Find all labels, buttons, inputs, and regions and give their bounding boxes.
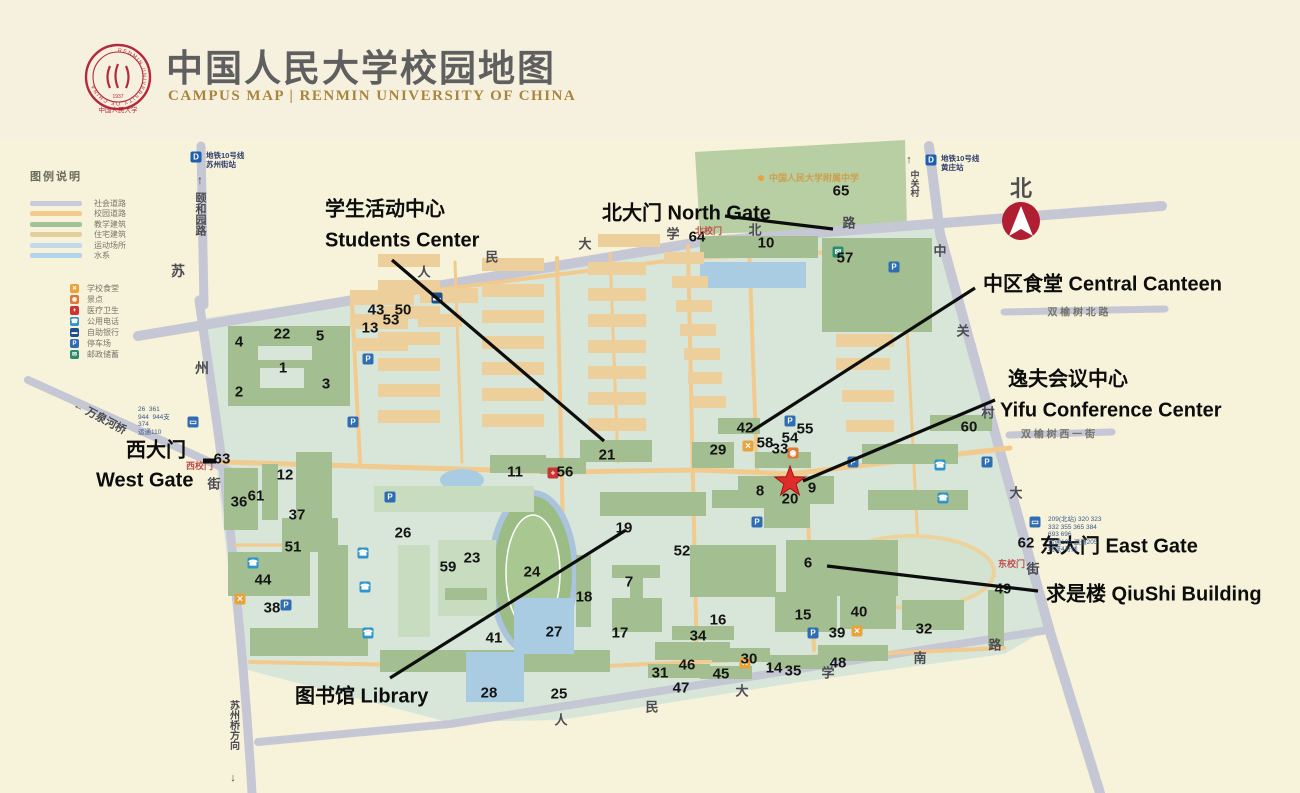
post-icon: ✉ xyxy=(70,350,79,359)
legend-color-bar xyxy=(30,211,82,216)
legend-road-item: 住宅建筑 xyxy=(30,230,180,241)
annotation-students-center-en: Students Center xyxy=(325,230,479,253)
tel-icon: ☎ xyxy=(70,317,79,326)
legend-icon-label: 邮政储蓄 xyxy=(87,349,119,360)
legend-road-item: 教学建筑 xyxy=(30,219,180,230)
legend-icon-label: 医疗卫生 xyxy=(87,305,119,316)
legend-icon-label: 景点 xyxy=(87,294,103,305)
compass: 北 xyxy=(1002,176,1040,240)
annotation-west-gate-en: West Gate xyxy=(96,470,193,493)
legend-icon-label: 公用电话 xyxy=(87,316,119,327)
legend-road-item: 运动场所 xyxy=(30,240,180,251)
scenic-icon: ◉ xyxy=(70,295,79,304)
annotation-central-canteen: 中区食堂 Central Canteen xyxy=(983,268,1222,297)
annotation-north-gate: 北大门 North Gate xyxy=(602,197,771,226)
central-canteen-line xyxy=(752,288,975,431)
location-star xyxy=(775,466,805,495)
annotation-students-center-cn: 学生活动中心 xyxy=(325,193,445,222)
legend-icon-item: ✕学校食堂 xyxy=(70,283,180,294)
legend-icon-item: ✉邮政储蓄 xyxy=(70,349,180,360)
legend-color-bar xyxy=(30,222,82,227)
legend-color-bar xyxy=(30,232,82,237)
legend-road-item: 校园道路 xyxy=(30,209,180,220)
map-overlay: 北 xyxy=(0,0,1300,793)
legend-road-label: 社会道路 xyxy=(94,198,126,209)
annotation-yifu-en: Yifu Conference Center xyxy=(1000,400,1222,423)
east-gate-routes: 209(北站) 320 323 332 355 365 384 693 696 … xyxy=(1048,516,1101,554)
annotation-lines xyxy=(203,216,1038,678)
med-icon: + xyxy=(70,306,79,315)
legend-icon-items: ✕学校食堂◉景点+医疗卫生☎公用电话▬自助银行P停车场✉邮政储蓄 xyxy=(70,283,180,360)
legend-icon-item: ☎公用电话 xyxy=(70,316,180,327)
legend-icon-item: ◉景点 xyxy=(70,294,180,305)
legend-icon-label: 自助银行 xyxy=(87,327,119,338)
legend-road-label: 住宅建筑 xyxy=(94,229,126,240)
annotation-west-gate-cn: 西大门 xyxy=(126,434,186,463)
annotation-yifu-cn: 逸夫会议中心 xyxy=(1008,363,1128,392)
legend-color-bar xyxy=(30,201,82,206)
qiushi-line xyxy=(827,566,1038,591)
legend-title: 图例说明 xyxy=(30,168,180,184)
legend-color-bar xyxy=(30,243,82,248)
food-icon: ✕ xyxy=(70,284,79,293)
legend-road-label: 运动场所 xyxy=(94,240,126,251)
P-icon: P xyxy=(70,339,79,348)
legend-icon-item: +医疗卫生 xyxy=(70,305,180,316)
annotation-library: 图书馆 Library xyxy=(295,680,428,709)
legend-icon-label: 学校食堂 xyxy=(87,283,119,294)
legend-color-bar xyxy=(30,253,82,258)
legend-road-label: 水系 xyxy=(94,250,110,261)
library-line xyxy=(390,530,626,678)
yifu-line xyxy=(803,400,995,481)
compass-north-label: 北 xyxy=(1010,176,1032,201)
annotation-qiushi: 求是楼 QiuShi Building xyxy=(1046,578,1262,607)
legend-road-item: 社会道路 xyxy=(30,198,180,209)
metro-station-label: 地铁10号线黄庄站 xyxy=(941,154,979,172)
legend-icon-item: P停车场 xyxy=(70,338,180,349)
legend-road-items: 社会道路校园道路教学建筑住宅建筑运动场所水系 xyxy=(30,198,180,261)
legend-road-label: 校园道路 xyxy=(94,208,126,219)
legend-road-label: 教学建筑 xyxy=(94,219,126,230)
campus-map-page: RENMIN UNIVERSITY OF CHINA 1937 中国人民大学 中… xyxy=(0,0,1300,793)
metro-station-label: 地铁10号线苏州街站 xyxy=(206,151,244,169)
legend-road-item: 水系 xyxy=(30,251,180,262)
legend-icon-item: ▬自助银行 xyxy=(70,327,180,338)
west-gate-routes: 26 361 944 944支 374 运通110 xyxy=(138,406,170,436)
legend-icon-label: 停车场 xyxy=(87,338,111,349)
atm-icon: ▬ xyxy=(70,328,79,337)
legend: 图例说明 社会道路校园道路教学建筑住宅建筑运动场所水系 ✕学校食堂◉景点+医疗卫… xyxy=(30,168,180,360)
students-center-line xyxy=(392,260,604,441)
